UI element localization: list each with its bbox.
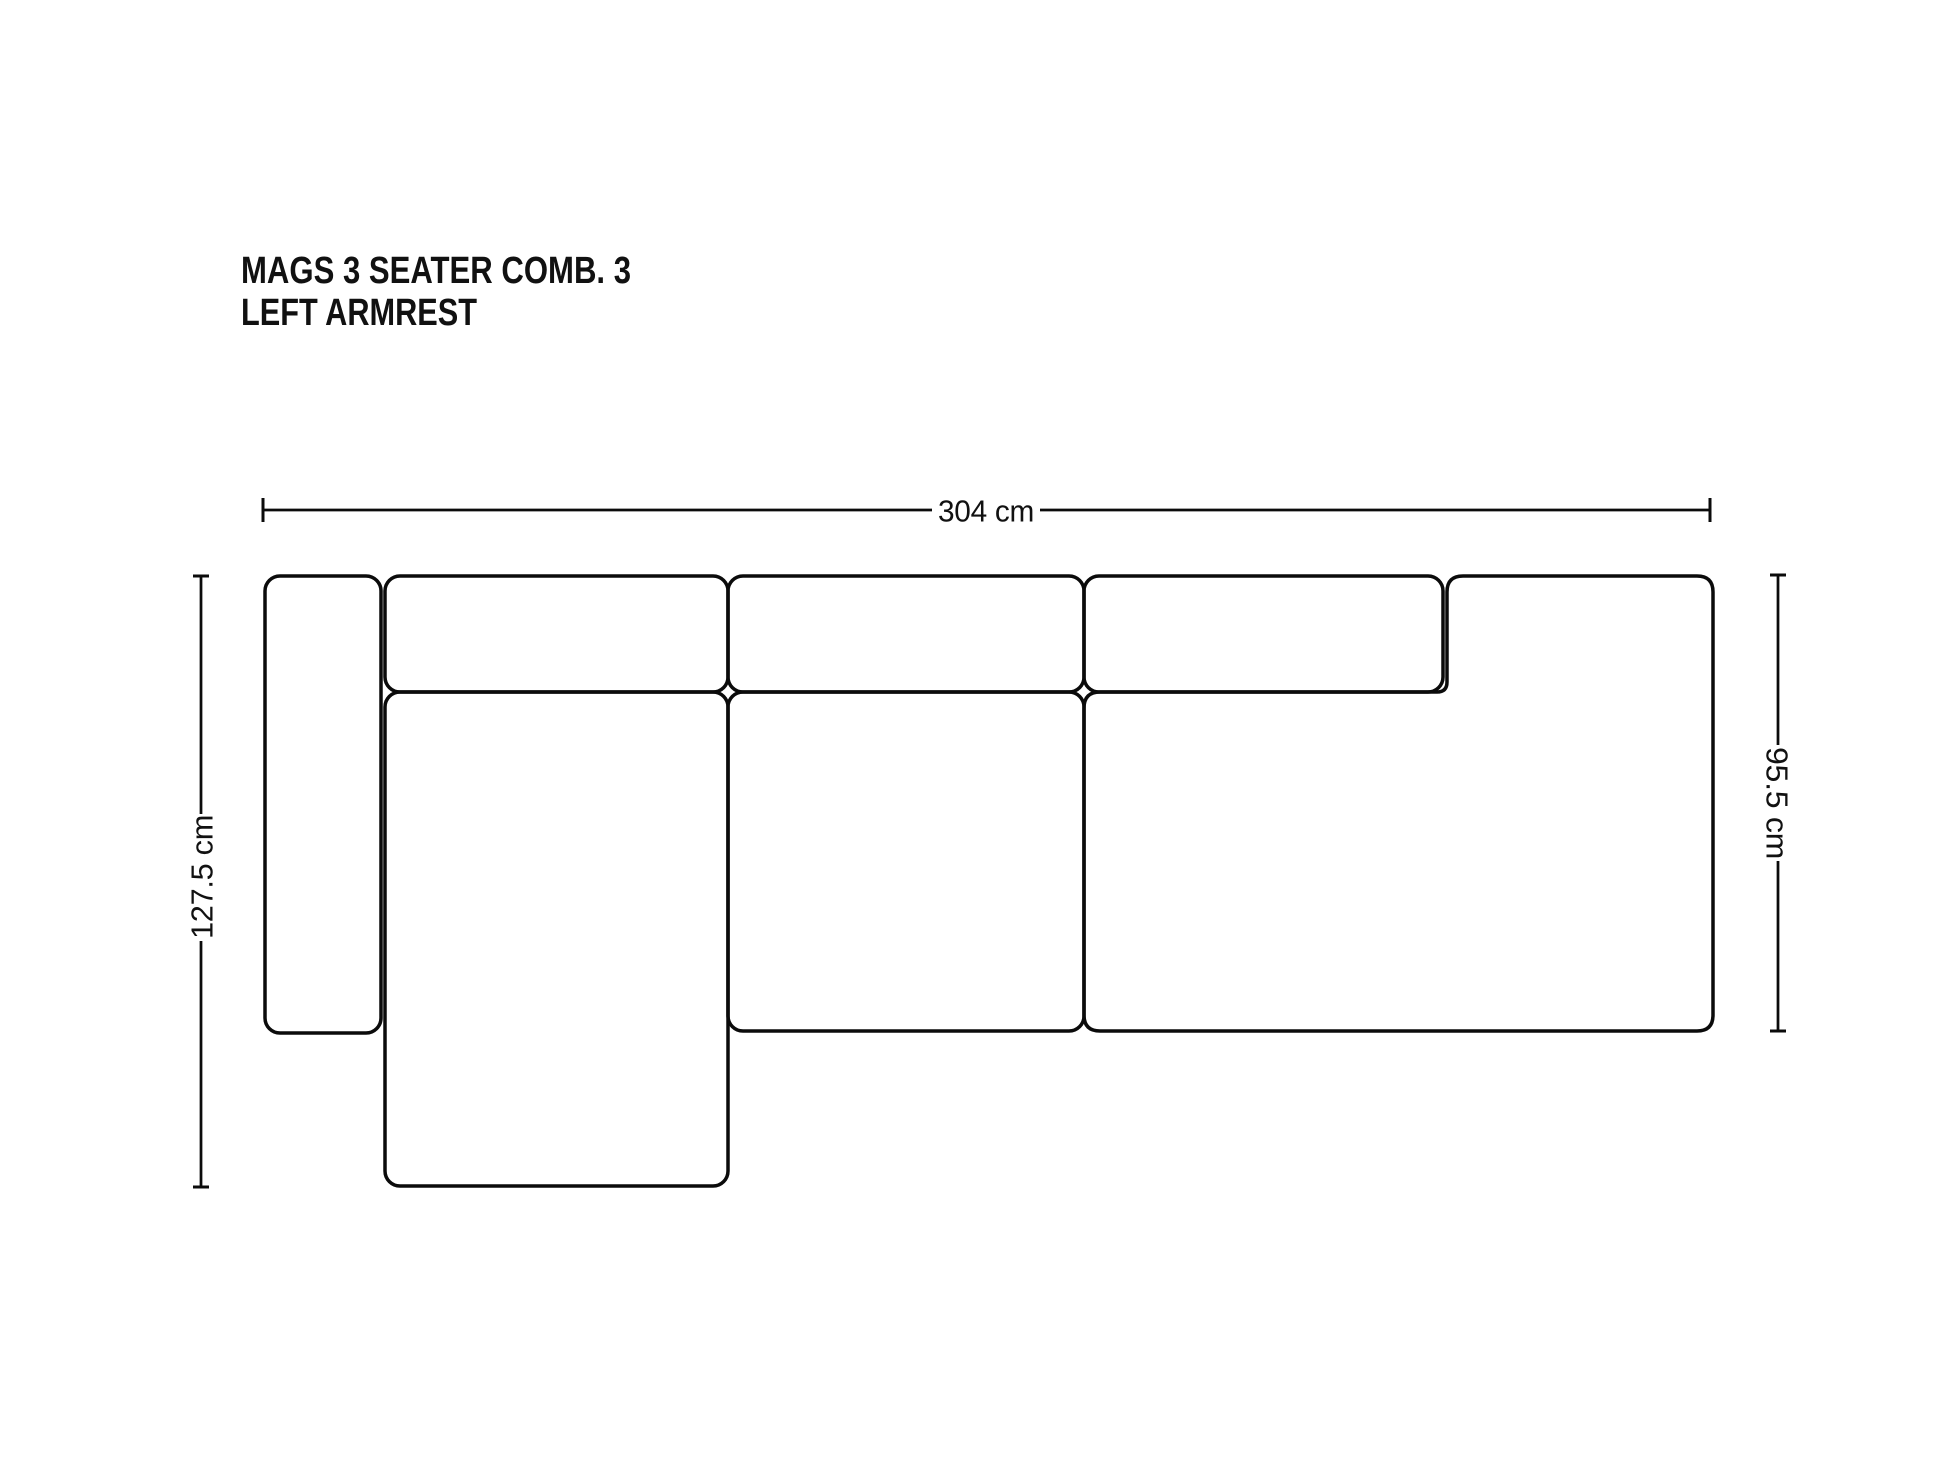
width-dimension-label: 304 cm xyxy=(938,494,1034,529)
seat-depth-dimension: 95.5 cm xyxy=(1760,575,1795,1031)
diagram-title-line1: MAGS 3 SEATER COMB. 3 xyxy=(241,250,631,292)
back-cushion-3-outline xyxy=(1084,576,1443,692)
right-corner-module-outline xyxy=(1084,576,1713,1031)
width-dimension: 304 cm xyxy=(263,494,1710,529)
title-block: MAGS 3 SEATER COMB. 3 LEFT ARMREST xyxy=(241,250,631,334)
chaise-module-outline xyxy=(385,692,728,1186)
middle-seat-module-outline xyxy=(728,692,1084,1031)
sofa-dimension-diagram: MAGS 3 SEATER COMB. 3 LEFT ARMREST 304 c… xyxy=(0,0,1946,1464)
total-depth-dimension: 127.5 cm xyxy=(185,576,220,1187)
back-cushion-2-outline xyxy=(728,576,1084,692)
back-cushion-1-outline xyxy=(385,576,728,692)
seat-depth-dimension-label: 95.5 cm xyxy=(1760,747,1795,859)
sofa-outline xyxy=(265,576,1713,1186)
sofa-dimension-diagram-page: MAGS 3 SEATER COMB. 3 LEFT ARMREST 304 c… xyxy=(0,0,1946,1464)
left-armrest-outline xyxy=(265,576,381,1033)
total-depth-dimension-label: 127.5 cm xyxy=(185,815,220,939)
diagram-title-line2: LEFT ARMREST xyxy=(241,292,477,334)
